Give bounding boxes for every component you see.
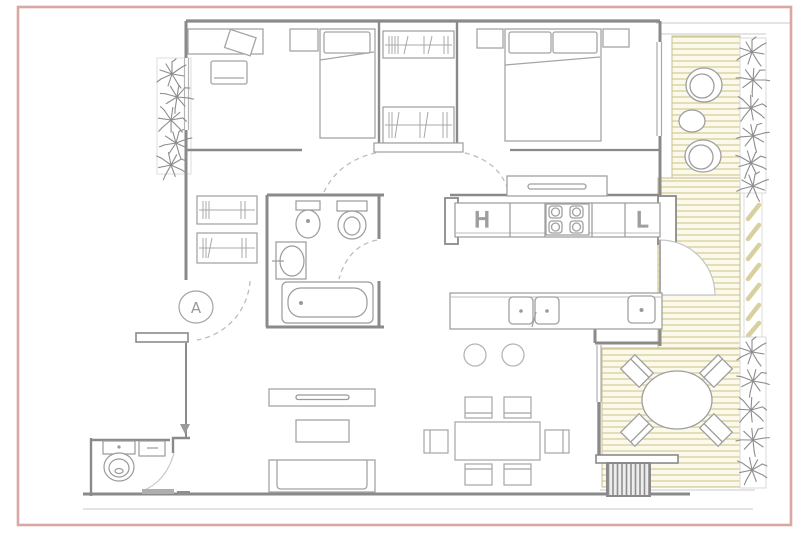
bar-stools bbox=[464, 344, 524, 366]
bathroom bbox=[272, 201, 373, 323]
sofa bbox=[269, 460, 375, 492]
bathtub bbox=[282, 282, 373, 323]
cooktop bbox=[546, 204, 589, 235]
planter-pot bbox=[685, 140, 721, 172]
toilet bbox=[337, 201, 367, 239]
wc-toilet bbox=[104, 453, 134, 481]
planter-strip-right-bottom bbox=[740, 337, 766, 488]
bedroom1-door-arc bbox=[324, 151, 385, 192]
sink-single bbox=[628, 296, 655, 323]
dining-table bbox=[455, 422, 540, 460]
washbasin bbox=[272, 242, 306, 279]
dining-chair bbox=[504, 397, 531, 418]
terrace-table bbox=[642, 371, 712, 429]
shelf-base bbox=[374, 143, 463, 152]
desk-chair bbox=[211, 61, 247, 84]
bedroom2-door-arc bbox=[456, 151, 508, 190]
appliance-label: L bbox=[636, 208, 648, 232]
floor-plan-drawing: A bbox=[0, 0, 810, 540]
extractor-hood bbox=[507, 176, 607, 196]
entry-door-leaf bbox=[142, 489, 174, 494]
oven-label: H bbox=[474, 208, 490, 232]
burner bbox=[549, 221, 562, 233]
burner bbox=[570, 221, 583, 233]
window-bedroom2-terrace bbox=[655, 42, 665, 136]
wc-cabinet bbox=[139, 441, 165, 456]
floor-plan-photo: A bbox=[0, 0, 810, 540]
bedroom-1 bbox=[188, 29, 375, 138]
kitchen: H L bbox=[450, 176, 662, 366]
kitchen-island bbox=[450, 293, 662, 329]
gravel-strip-right bbox=[744, 193, 762, 340]
bathroom-door-arc bbox=[339, 240, 377, 279]
dining-set bbox=[424, 397, 569, 485]
planter-pot bbox=[686, 68, 722, 102]
living-room bbox=[269, 389, 375, 492]
dining-chair bbox=[465, 464, 492, 485]
shelving-unit bbox=[374, 31, 463, 152]
doormat-hatch bbox=[607, 463, 650, 496]
wc-washbasin bbox=[103, 441, 135, 454]
coffee-table bbox=[296, 420, 349, 442]
entry-door bbox=[142, 453, 190, 495]
window-living-terrace bbox=[597, 345, 601, 402]
hall-wardrobe bbox=[197, 196, 257, 263]
bedside-table bbox=[477, 29, 503, 48]
bedside-table bbox=[603, 29, 629, 47]
dining-chair bbox=[465, 397, 492, 418]
dining-chair bbox=[545, 430, 569, 453]
pillow bbox=[509, 32, 551, 53]
bedside-table bbox=[290, 29, 318, 51]
dining-chair bbox=[424, 430, 448, 453]
pillow bbox=[324, 32, 370, 53]
entry-marker-label: A bbox=[191, 299, 202, 317]
dining-chair bbox=[504, 464, 531, 485]
tv-console bbox=[269, 389, 375, 406]
burner bbox=[570, 206, 583, 218]
pillow bbox=[553, 32, 597, 53]
bedroom-2 bbox=[477, 29, 629, 141]
entry-direction-arrow bbox=[180, 424, 190, 434]
burner bbox=[549, 206, 562, 218]
wc bbox=[103, 441, 165, 481]
entry-marker-a: A bbox=[179, 291, 213, 323]
bidet bbox=[296, 201, 320, 238]
planter-pot bbox=[679, 110, 705, 132]
